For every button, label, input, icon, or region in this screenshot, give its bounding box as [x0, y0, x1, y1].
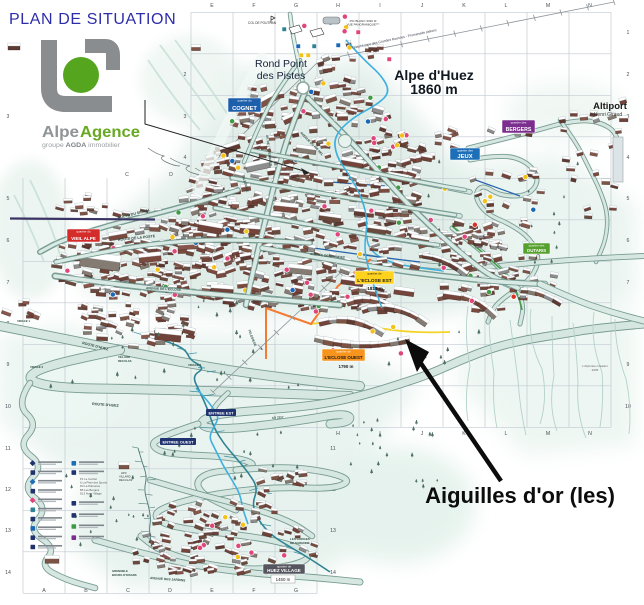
svg-text:quartier des: quartier des [457, 148, 473, 152]
svg-text:ENTREE EST: ENTREE EST [208, 411, 234, 416]
svg-text:L'ECLOSE OUEST: L'ECLOSE OUEST [324, 355, 362, 360]
svg-text:10: 10 [5, 404, 11, 410]
svg-text:N: N [588, 3, 592, 9]
svg-text:VIRAGE 3: VIRAGE 3 [30, 365, 44, 369]
svg-text:N: N [588, 431, 592, 437]
svg-text:ENTREE OUEST: ENTREE OUEST [162, 440, 194, 445]
svg-text:M: M [546, 3, 550, 9]
svg-text:12: 12 [5, 487, 11, 493]
svg-text:2005: 2005 [592, 368, 599, 372]
svg-text:OUTARIS: OUTARIS [527, 248, 547, 253]
svg-text:D: D [169, 172, 173, 178]
svg-text:VUE PANORAMIQUE***: VUE PANORAMIQUE*** [347, 23, 381, 27]
svg-text:M: M [546, 431, 550, 437]
svg-text:quartier des: quartier des [529, 243, 545, 247]
svg-text:BERGERS: BERGERS [506, 127, 532, 133]
svg-text:13: 13 [5, 528, 11, 534]
svg-text:E: E [210, 588, 214, 594]
svg-text:4: 4 [184, 155, 187, 161]
svg-text:quartier du: quartier du [76, 229, 91, 233]
svg-text:Rond Point: Rond Point [255, 58, 307, 70]
svg-text:6: 6 [627, 238, 630, 244]
svg-text:quartier de: quartier de [336, 349, 351, 353]
svg-text:VIRAGE 2: VIRAGE 2 [188, 363, 202, 367]
svg-text:4: 4 [627, 155, 630, 161]
svg-text:2: 2 [627, 72, 630, 78]
svg-text:11: 11 [330, 446, 335, 452]
svg-text:5: 5 [7, 196, 10, 202]
svg-text:H: H [336, 431, 340, 437]
svg-text:1: 1 [627, 30, 630, 36]
svg-text:D: D [168, 588, 172, 594]
svg-text:COGNET: COGNET [232, 106, 257, 112]
svg-text:J: J [421, 3, 424, 9]
svg-text:1815 m: 1815 m [367, 286, 383, 291]
svg-text:COL DE POUTRAN: COL DE POUTRAN [248, 21, 277, 25]
svg-text:7: 7 [7, 280, 10, 286]
svg-text:14: 14 [330, 570, 336, 576]
svg-text:VIEIL ALPE: VIEIL ALPE [71, 236, 96, 241]
svg-text:C: C [126, 588, 130, 594]
svg-text:Alpe: Alpe [42, 124, 79, 141]
svg-text:7: 7 [627, 280, 630, 286]
svg-text:groupe AGDA immobilier: groupe AGDA immobilier [42, 142, 121, 149]
svg-text:1450 m: 1450 m [276, 577, 291, 582]
svg-text:JEUX: JEUX [457, 154, 472, 160]
svg-text:K: K [462, 3, 466, 9]
svg-text:13: 13 [330, 528, 336, 534]
svg-text:6: 6 [7, 238, 10, 244]
svg-text:F: F [252, 3, 255, 9]
svg-text:L'ECLOSE EST: L'ECLOSE EST [357, 278, 392, 284]
svg-text:5: 5 [627, 196, 630, 202]
svg-text:11: 11 [5, 446, 10, 452]
svg-text:Agence: Agence [80, 124, 140, 141]
svg-text:L: L [505, 3, 508, 9]
svg-text:PLAN DE SITUATION: PLAN DE SITUATION [9, 11, 176, 28]
svg-text:G: G [294, 588, 298, 594]
svg-text:1860 m: 1860 m [410, 81, 457, 97]
svg-text:J: J [421, 431, 424, 437]
svg-text:I: I [379, 3, 380, 9]
svg-text:14: 14 [5, 570, 11, 576]
svg-text:quartier du: quartier du [237, 98, 252, 102]
svg-text:BOURG D'OISANS: BOURG D'OISANS [112, 573, 137, 577]
svg-text:L: L [505, 431, 508, 437]
svg-text:Altiport: Altiport [593, 101, 628, 112]
svg-text:9: 9 [7, 362, 10, 368]
svg-text:quartier de: quartier de [367, 271, 382, 275]
svg-text:F: F [252, 588, 255, 594]
svg-text:DE SARENNE: DE SARENNE [290, 541, 310, 545]
svg-text:HUEZ VILLAGE: HUEZ VILLAGE [267, 568, 301, 573]
svg-text:VIRAGE 1: VIRAGE 1 [17, 319, 31, 323]
svg-text:Aiguilles d'or (les): Aiguilles d'or (les) [425, 483, 615, 508]
svg-text:3: 3 [184, 114, 187, 120]
svg-text:H: H [336, 3, 340, 9]
svg-text:A: A [42, 588, 46, 594]
svg-text:3: 3 [7, 114, 10, 120]
svg-text:D13 Huez Village: D13 Huez Village [80, 491, 102, 495]
svg-text:des Pistes: des Pistes [257, 70, 305, 82]
svg-text:quartier des: quartier des [511, 120, 527, 124]
svg-text:1790 m: 1790 m [339, 364, 354, 369]
svg-text:Henri Giraud: Henri Giraud [594, 112, 623, 118]
svg-text:9: 9 [627, 362, 630, 368]
svg-text:G: G [294, 3, 298, 9]
svg-text:RECULAS: RECULAS [119, 478, 132, 482]
svg-text:RECULAS: RECULAS [118, 359, 132, 363]
svg-text:C: C [125, 172, 129, 178]
svg-text:E: E [210, 3, 214, 9]
